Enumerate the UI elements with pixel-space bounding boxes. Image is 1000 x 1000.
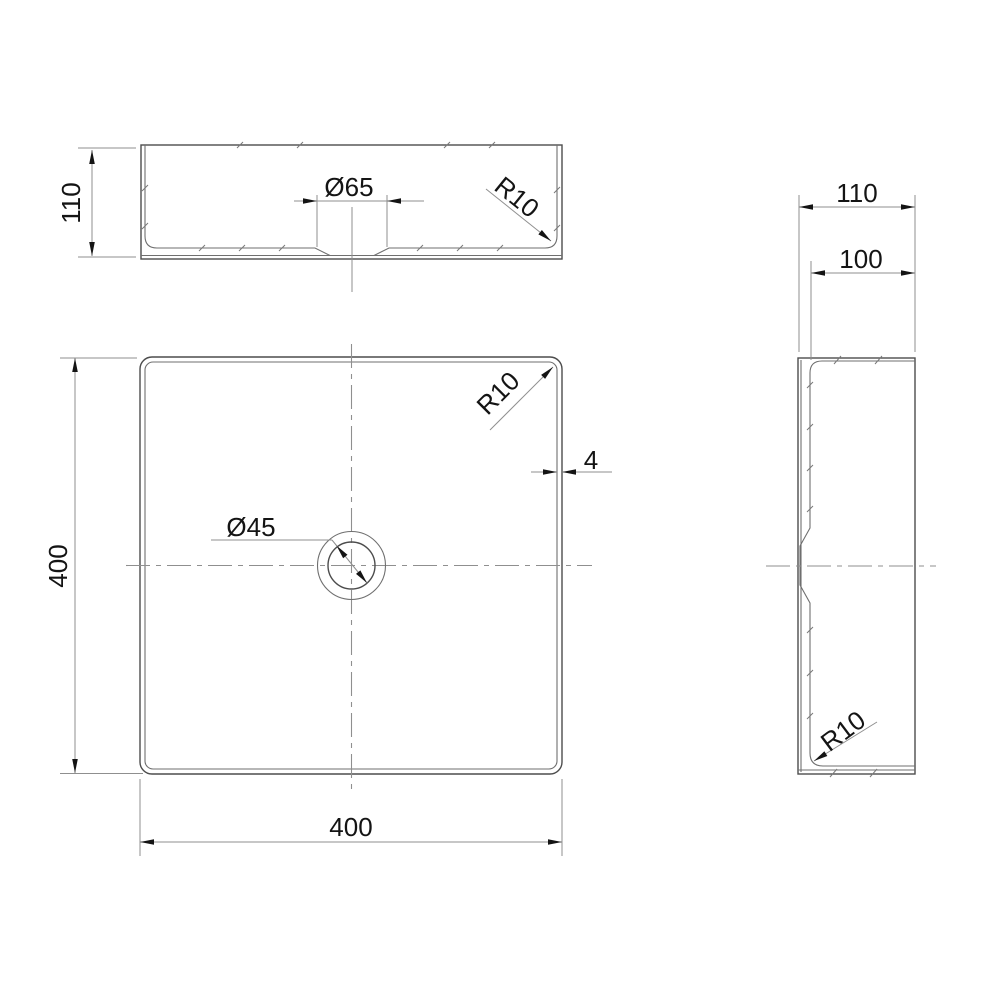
arrowhead	[541, 365, 555, 379]
side-radius-value: R10	[815, 705, 871, 758]
front-drain-diameter-value: Ø65	[324, 172, 373, 202]
arrowhead	[140, 839, 154, 845]
side-dim-inner-100: 100	[811, 244, 915, 360]
front-height-value: 110	[56, 182, 86, 223]
plan-dim-wall-4: 4	[531, 445, 612, 475]
arrowhead	[387, 198, 401, 204]
arrowhead	[548, 839, 562, 845]
side-inner-depth-value: 100	[839, 244, 882, 274]
arrowhead	[813, 751, 828, 763]
arrowhead	[303, 198, 317, 204]
arrowhead	[89, 242, 95, 256]
arrowhead	[799, 204, 813, 210]
arrowhead	[562, 469, 576, 475]
front-dim-radius-r10: R10	[486, 170, 553, 243]
plan-view: Ø45 R10 4 400	[43, 344, 612, 856]
side-depth-value: 110	[836, 178, 877, 208]
side-inner-wall-and-drain-bump	[800, 361, 915, 766]
plan-dim-hole-45: Ø45	[211, 512, 369, 585]
side-dim-radius-r10: R10	[813, 705, 877, 764]
plan-hole-diameter-value: Ø45	[226, 512, 275, 542]
drawing-svg: 110 Ø65 R10 Ø45	[0, 0, 1000, 1000]
arrowhead	[72, 358, 78, 372]
arrowhead	[72, 759, 78, 773]
plan-width-value: 400	[329, 812, 372, 842]
arrowhead	[901, 204, 915, 210]
technical-drawing-sheet: 110 Ø65 R10 Ø45	[0, 0, 1000, 1000]
arrowhead	[543, 469, 557, 475]
front-view: 110 Ø65 R10	[56, 142, 562, 292]
arrowhead	[89, 150, 95, 164]
front-radius-value: R10	[489, 170, 545, 223]
plan-wall-thickness-value: 4	[584, 445, 598, 475]
plan-depth-value: 400	[43, 544, 73, 587]
arrowhead	[811, 270, 825, 276]
front-dim-height-110: 110	[56, 148, 136, 257]
front-dim-drain-65: Ø65	[294, 172, 424, 247]
plan-dim-radius-r10: R10	[471, 365, 555, 430]
arrowhead	[901, 270, 915, 276]
plan-radius-value: R10	[471, 366, 526, 421]
side-view: 110 100 R10	[766, 178, 936, 777]
plan-dim-width-400: 400	[140, 779, 562, 856]
